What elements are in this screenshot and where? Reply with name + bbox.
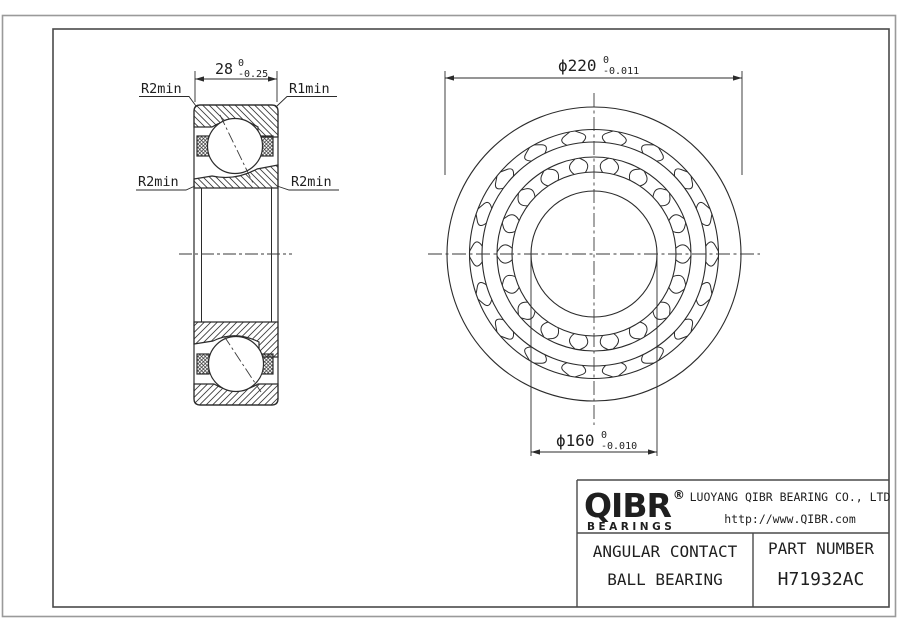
label-r1min-top-right: R1min [289,81,330,97]
part-number-value: H71932AC [778,569,865,590]
dim-bore-symbol: ϕ [556,431,566,450]
engineering-drawing-page: 28 0 -0.25 R2min R1min R2min R2min ϕ220 … [0,0,900,636]
arrowhead-left [531,449,540,454]
front-view [428,93,760,425]
dim-bore-text: ϕ160 [556,431,595,450]
lower-ball [209,337,264,392]
dim-outer-value: 220 [568,56,597,75]
leader-top-left [139,97,196,107]
label-r2min-mid-right: R2min [291,174,332,190]
brand-subtext: BEARINGS [587,521,675,533]
arrowhead-right [648,449,657,454]
arrowhead-right [733,75,742,80]
dim-outer-tol-lower: -0.011 [603,66,639,77]
dim-width-tol-upper: 0 [238,58,244,69]
arrowhead-right [268,76,277,81]
product-type-line1: ANGULAR CONTACT [593,542,738,561]
registered-trademark-symbol: ® [673,488,684,502]
outer-diameter-dimension [445,71,742,175]
brand-wordmark: QIBR [584,486,671,525]
dim-bore-value: 160 [566,431,595,450]
lower-cage-left [197,354,209,374]
part-number-label: PART NUMBER [768,539,874,558]
dim-outer-symbol: ϕ [558,56,568,75]
brand-logo: QIBR® [584,486,684,525]
leader-top-right [277,97,337,107]
label-r2min-top-left: R2min [141,81,182,97]
arrowhead-left [195,76,204,81]
label-r2min-mid-left: R2min [138,174,179,190]
section-view [179,105,292,405]
product-type-line2: BALL BEARING [607,570,723,589]
dim-outer-text: ϕ220 [558,56,597,75]
dim-width-tol-lower: -0.25 [238,69,268,80]
outer-page-frame [3,16,896,617]
arrowhead-left [445,75,454,80]
company-name: LUOYANG QIBR BEARING CO., LTD [690,490,891,504]
dim-width-value: 28 [215,60,233,78]
dim-outer-tol-upper: 0 [603,55,609,66]
company-website: http://www.QIBR.com [724,512,856,526]
bearing-drawing-canvas: 28 0 -0.25 R2min R1min R2min R2min ϕ220 … [0,0,900,636]
bore-diameter-dimension [531,254,657,456]
dim-bore-tol-upper: 0 [601,430,607,441]
dim-bore-tol-lower: -0.010 [601,441,637,452]
